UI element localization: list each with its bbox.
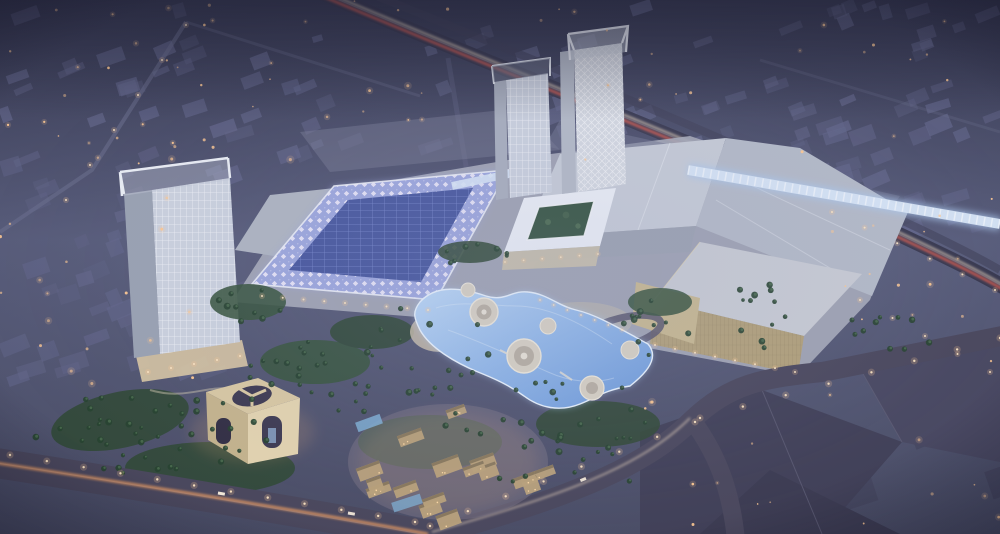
aerial-render [0,0,1000,534]
vignette [0,0,1000,534]
rendering-canvas: Dusk aerial rendering of a large shoppin… [0,0,1000,534]
